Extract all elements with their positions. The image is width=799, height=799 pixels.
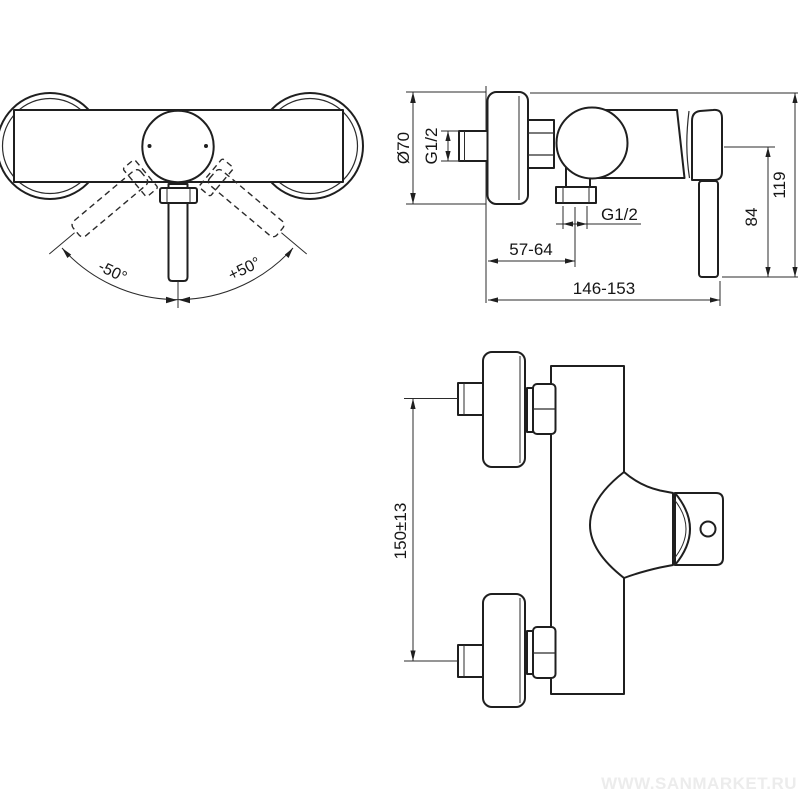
handle-knob-side <box>692 110 722 180</box>
arrowhead <box>577 221 587 226</box>
inlet-spacing-label: 150±13 <box>391 503 410 560</box>
dim-handle-height: 84 <box>724 147 775 277</box>
angle-label-right: +50° <box>226 254 264 284</box>
arc-stub-right <box>281 233 306 254</box>
eccentric-flange-top <box>483 352 525 467</box>
side-view: Ø70 G1/2 G1/2 57-64 <box>394 86 798 306</box>
arrowhead <box>410 399 415 410</box>
dim-inlet-thread: G1/2 <box>422 128 460 165</box>
arrowhead <box>410 193 416 204</box>
wall-to-outlet-label: 57-64 <box>509 240 552 259</box>
flange-side <box>488 92 529 204</box>
lever-screw-hole <box>701 522 716 537</box>
inlet-pipe <box>459 131 488 161</box>
overall-depth-label: 146-153 <box>573 279 635 298</box>
inlet-thread-label: G1/2 <box>422 128 441 165</box>
arrowhead <box>445 131 450 141</box>
overall-height-label: 119 <box>770 171 789 198</box>
arc-stub-left <box>49 233 74 254</box>
dim-wall-to-outlet: 57-64 <box>488 207 575 267</box>
drawing-canvas: -50° +50° <box>0 0 799 799</box>
arrowhead <box>710 297 720 302</box>
arrowhead <box>285 248 293 258</box>
screw-dot-right <box>204 144 208 148</box>
inlet-pipe-top <box>458 383 485 415</box>
top-view: 150±13 <box>391 352 723 707</box>
arrowhead <box>488 258 498 263</box>
arrowhead <box>565 258 575 263</box>
eccentric-flange-bottom <box>483 594 525 707</box>
hex-nut <box>528 120 554 168</box>
arrowhead <box>166 297 177 303</box>
angle-label-left: -50° <box>95 258 129 286</box>
arrowhead <box>488 297 498 302</box>
flange-diameter-label: Ø70 <box>394 132 413 164</box>
arrowhead <box>765 267 770 277</box>
mixer-dimension-drawing: -50° +50° <box>0 0 799 799</box>
arrowhead <box>179 297 190 303</box>
cartridge-circle-side <box>557 108 628 179</box>
dim-outlet-thread: G1/2 <box>556 205 641 229</box>
dim-inlet-spacing: 150±13 <box>391 399 458 662</box>
arrowhead <box>445 151 450 161</box>
screw-dot-left <box>148 144 152 148</box>
arrowhead <box>410 651 415 662</box>
handle-height-label: 84 <box>742 208 761 227</box>
arrowhead <box>765 147 770 157</box>
inlet-pipe-bottom <box>458 645 485 677</box>
handle-collar <box>160 188 197 203</box>
outlet-nut <box>556 187 596 203</box>
cartridge-circle <box>142 111 213 182</box>
arrowhead <box>792 267 797 277</box>
arrowhead <box>792 93 797 103</box>
watermark-text: WWW.SANMARKET.RU <box>601 774 797 793</box>
arrowhead <box>410 92 416 103</box>
dim-overall-depth: 146-153 <box>488 279 720 306</box>
arrowhead <box>563 221 573 226</box>
handle-lever-side <box>699 181 718 277</box>
body-ring-line <box>687 111 690 178</box>
mixer-body-top <box>551 366 673 694</box>
outlet-thread-label: G1/2 <box>601 205 638 224</box>
front-view: -50° +50° <box>0 93 363 308</box>
